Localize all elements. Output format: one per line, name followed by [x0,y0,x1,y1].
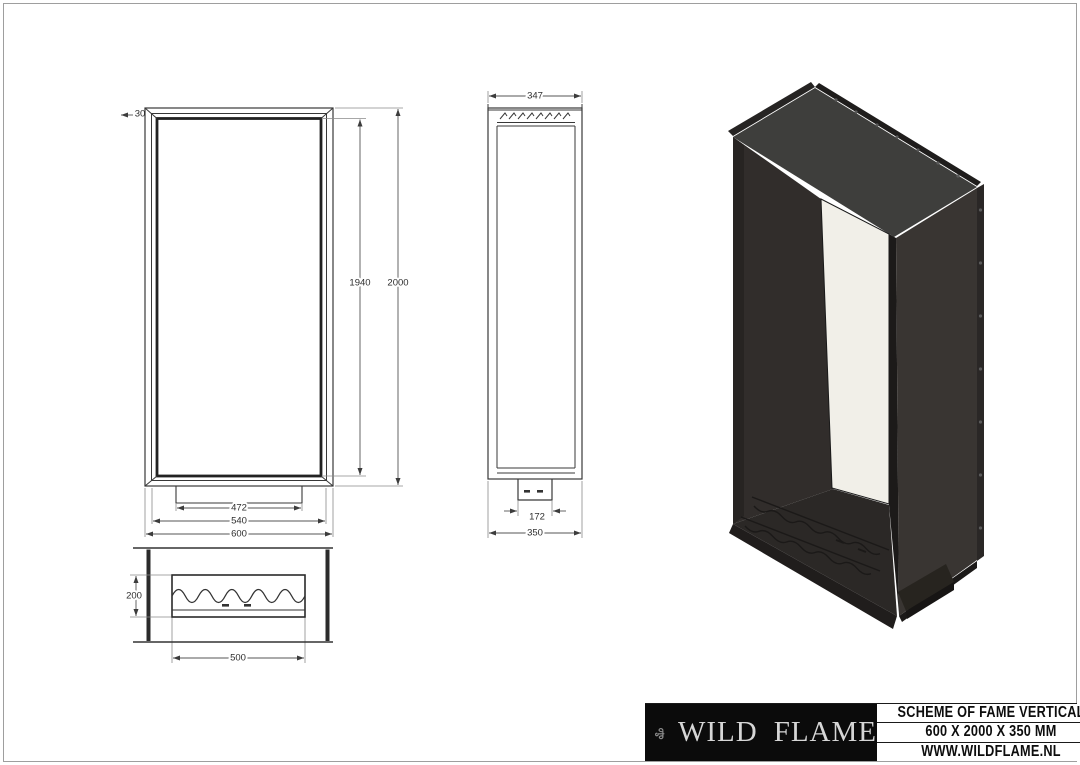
bottom-view [133,548,333,642]
scheme-title-text: SCHEME OF FAME VERTICAL [898,704,1080,722]
brand-word-flame: FLAME [774,716,877,748]
dim-bottom-depth: 200 [126,591,142,602]
dim-front-width: 600 [231,529,247,540]
brand-word-wild: WILD [678,716,758,748]
title-row-website: WWW.WILDFLAME.NL [877,743,1080,761]
iso-glass-panel [821,199,889,504]
bottom-left-cap [147,550,151,642]
dim-front-height: 2000 [387,278,408,289]
side-outer-box [488,108,582,479]
wild-flame-logo-icon [654,710,666,756]
title-row-scheme: SCHEME OF FAME VERTICAL [877,704,1080,723]
bottom-right-cap [326,550,330,642]
dim-front-inner-height: 1940 [349,278,370,289]
dim-front-flange: 30 [135,109,146,120]
side-burner-tray [518,479,552,500]
brand-panel: WILDFLAME [645,704,877,761]
dim-front-tray-width: 540 [231,516,247,527]
technical-drawing: 2000 1940 472 540 600 30 347 172 350 [0,0,1080,765]
title-block-rows: SCHEME OF FAME VERTICAL 600 X 2000 X 350… [877,704,1080,761]
iso-view [728,82,984,629]
front-glass-frame [157,119,321,477]
iso-left-edge-shade [733,137,744,524]
dim-front-burner-width: 472 [231,503,247,514]
dim-side-depth: 350 [527,528,543,539]
iso-right-face [896,188,977,616]
product-size-text: 600 X 2000 X 350 MM [926,723,1057,741]
title-row-size: 600 X 2000 X 350 MM [877,723,1080,742]
front-burner-tray [176,486,302,503]
title-block: WILDFLAME SCHEME OF FAME VERTICAL 600 X … [645,703,1077,761]
brand-name: WILDFLAME [678,716,877,749]
website-text: WWW.WILDFLAME.NL [921,743,1060,761]
dim-bottom-burner-length: 500 [230,653,246,664]
dim-side-tray-depth: 172 [529,512,545,523]
side-view [488,104,582,500]
dim-side-top-depth: 347 [527,91,543,102]
front-view [145,108,333,503]
iso-right-flange [977,184,984,561]
iso-interior-left-wall [733,137,833,524]
